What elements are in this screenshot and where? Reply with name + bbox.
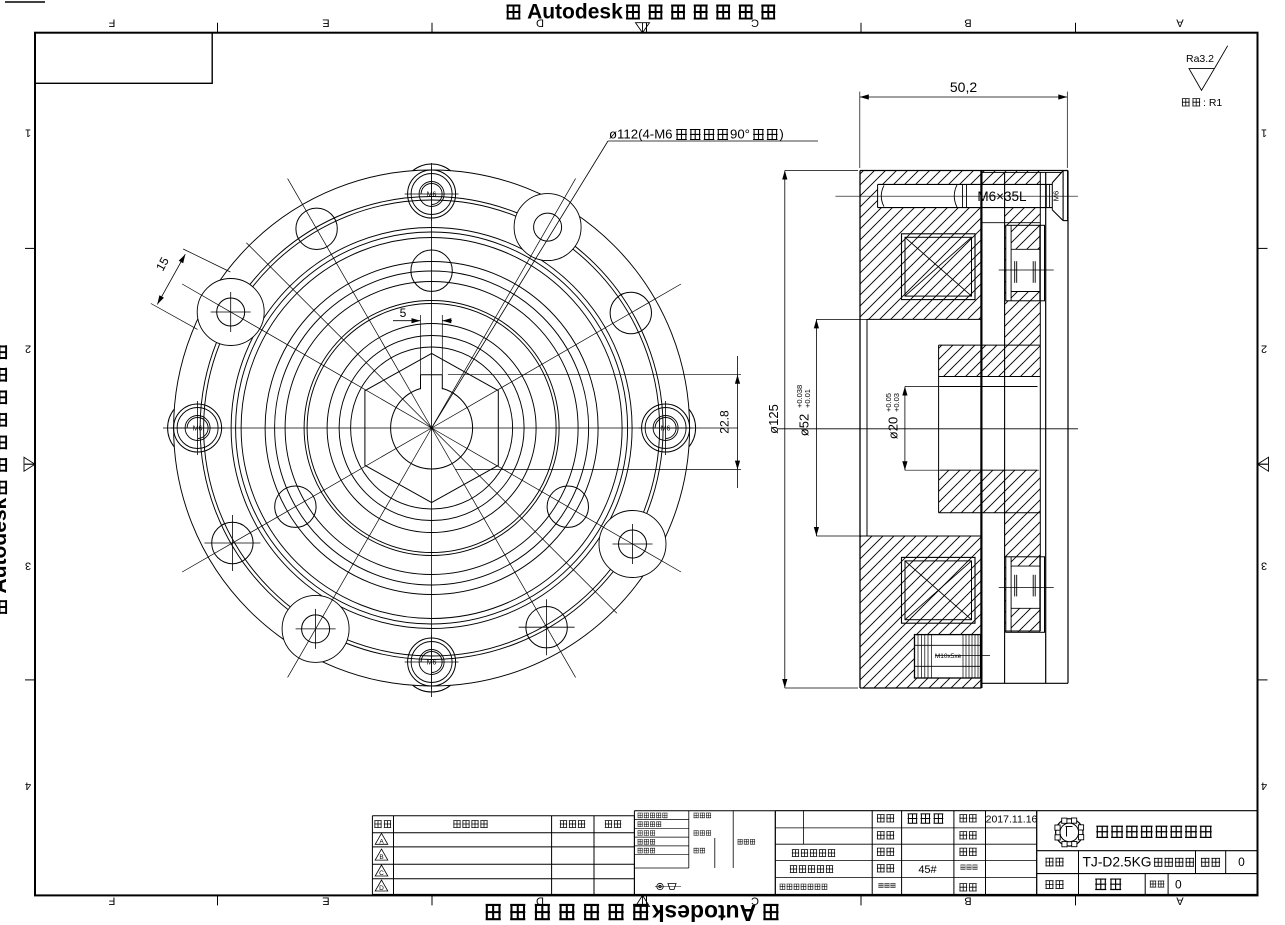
svg-text:1: 1 <box>1261 127 1267 139</box>
svg-text:Autodesk: Autodesk <box>652 900 757 925</box>
svg-text:): ) <box>779 127 783 142</box>
svg-text:D: D <box>379 885 384 892</box>
svg-text:M6: M6 <box>661 426 671 433</box>
svg-text:TJ-D2.5KG: TJ-D2.5KG <box>1083 855 1152 870</box>
svg-text:5: 5 <box>400 306 407 320</box>
svg-text:4: 4 <box>25 780 31 792</box>
svg-text:+0.01: +0.01 <box>803 389 812 408</box>
svg-text:E: E <box>322 17 329 29</box>
svg-text:: R1: : R1 <box>1203 97 1222 109</box>
svg-text:ø112(4-M6: ø112(4-M6 <box>609 127 673 142</box>
svg-text:M6: M6 <box>193 426 203 433</box>
svg-text:1: 1 <box>25 127 31 139</box>
svg-text:2017.11.16: 2017.11.16 <box>986 814 1038 826</box>
svg-text:Autodesk: Autodesk <box>0 497 11 593</box>
svg-text:C: C <box>379 870 384 877</box>
svg-text:3: 3 <box>25 560 31 572</box>
svg-text:Autodesk: Autodesk <box>527 1 623 24</box>
svg-text:2: 2 <box>1261 343 1267 355</box>
svg-text:ø125: ø125 <box>766 404 781 434</box>
svg-text:B: B <box>964 895 971 907</box>
svg-text:Ra3.2: Ra3.2 <box>1186 53 1214 65</box>
svg-text:2: 2 <box>25 343 31 355</box>
svg-text:ø20: ø20 <box>886 417 901 439</box>
svg-text:+0.03: +0.03 <box>892 393 901 412</box>
svg-text:E: E <box>322 895 329 907</box>
svg-text:50,2: 50,2 <box>950 79 977 95</box>
svg-text:M6: M6 <box>427 192 437 199</box>
svg-text:M6: M6 <box>427 660 437 667</box>
svg-text:ø52: ø52 <box>797 414 812 436</box>
svg-text:0: 0 <box>1175 878 1182 892</box>
svg-text:45#: 45# <box>918 864 937 876</box>
svg-text:90°: 90° <box>730 127 750 142</box>
svg-text:A: A <box>1176 17 1184 29</box>
svg-text:B: B <box>379 854 383 861</box>
svg-text:4: 4 <box>1261 780 1267 792</box>
svg-text:3: 3 <box>1261 560 1267 572</box>
svg-text:0: 0 <box>1238 855 1245 869</box>
svg-text:F: F <box>108 17 115 29</box>
svg-text:A: A <box>379 838 384 845</box>
svg-text:F: F <box>108 895 115 907</box>
svg-text:A: A <box>1176 895 1184 907</box>
svg-text:B: B <box>964 17 971 29</box>
svg-text:22.8: 22.8 <box>718 410 732 434</box>
svg-text:M10x5xe: M10x5xe <box>935 653 962 660</box>
